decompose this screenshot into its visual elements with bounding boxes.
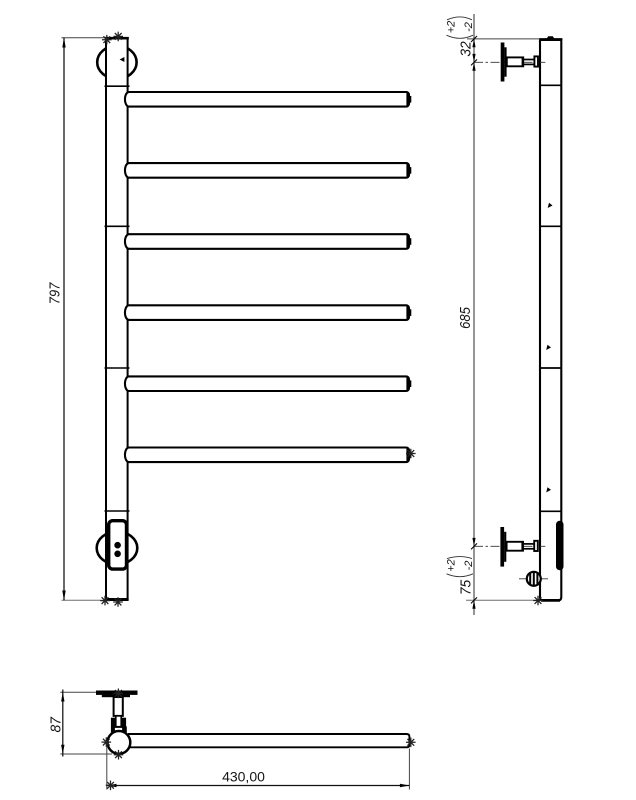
svg-text:+2: +2 — [446, 559, 458, 572]
svg-text:87: 87 — [47, 716, 63, 732]
svg-text:685: 685 — [457, 307, 473, 329]
svg-text:430,00: 430,00 — [222, 768, 265, 784]
svg-text:32: 32 — [458, 41, 475, 56]
svg-text:797: 797 — [47, 281, 63, 304]
svg-text:-2: -2 — [463, 22, 475, 32]
svg-text:-2: -2 — [463, 561, 475, 571]
svg-text:+2: +2 — [446, 21, 458, 34]
svg-text:75: 75 — [458, 579, 475, 595]
